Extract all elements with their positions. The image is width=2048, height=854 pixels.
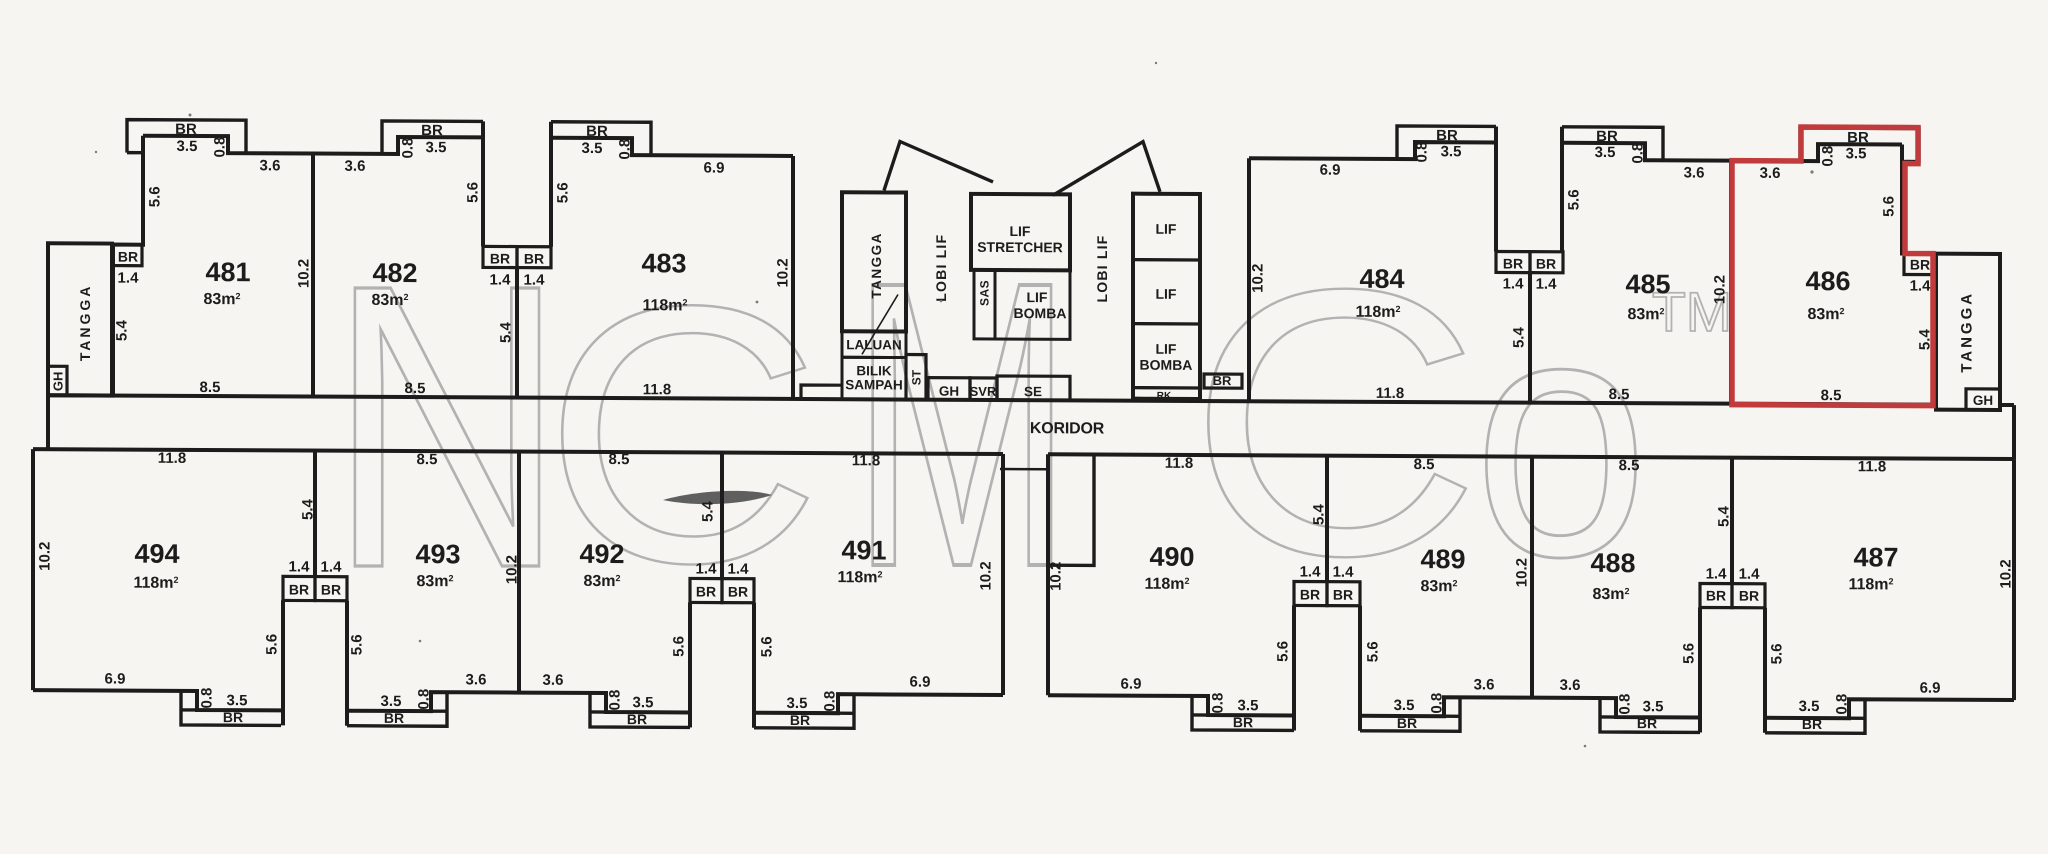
svg-text:BR: BR: [1910, 257, 1930, 273]
svg-text:BR: BR: [1213, 373, 1232, 388]
svg-text:BR: BR: [1233, 714, 1253, 730]
svg-text:BR: BR: [696, 583, 716, 599]
svg-text:11.8: 11.8: [158, 450, 186, 467]
svg-text:LIF: LIF: [1010, 223, 1031, 239]
svg-text:LOBI LIF: LOBI LIF: [1094, 234, 1110, 302]
svg-text:BR: BR: [175, 121, 197, 138]
svg-text:LIF: LIF: [1156, 286, 1177, 302]
svg-text:3.5: 3.5: [582, 140, 603, 157]
svg-text:1.4: 1.4: [1739, 566, 1761, 583]
svg-text:8.5: 8.5: [1414, 456, 1435, 473]
svg-text:BR: BR: [586, 123, 608, 140]
svg-text:1.4: 1.4: [1536, 276, 1558, 293]
svg-text:BR: BR: [1637, 715, 1657, 731]
svg-text:5.6: 5.6: [1680, 643, 1697, 664]
svg-text:BR: BR: [223, 709, 243, 725]
svg-text:BR: BR: [421, 122, 443, 139]
svg-text:3.5: 3.5: [1846, 145, 1867, 162]
svg-text:BR: BR: [1300, 586, 1320, 602]
svg-text:5.6: 5.6: [263, 634, 280, 655]
svg-text:BILIK: BILIK: [856, 363, 891, 378]
svg-text:3.5: 3.5: [1441, 143, 1462, 160]
svg-text:483: 483: [641, 248, 686, 278]
svg-text:487: 487: [1853, 542, 1898, 572]
svg-text:LOBI LIF: LOBI LIF: [933, 234, 949, 302]
svg-text:1.4: 1.4: [1333, 564, 1355, 581]
svg-text:5.4: 5.4: [113, 319, 130, 341]
svg-text:11.8: 11.8: [1858, 458, 1886, 475]
svg-text:3.5: 3.5: [787, 695, 808, 712]
svg-text:5.6: 5.6: [1565, 189, 1582, 210]
svg-text:3.5: 3.5: [633, 694, 654, 711]
svg-text:481: 481: [205, 257, 250, 287]
svg-text:5.6: 5.6: [146, 186, 163, 207]
svg-text:482: 482: [372, 258, 417, 288]
svg-text:485: 485: [1625, 269, 1670, 299]
svg-text:5.6: 5.6: [554, 182, 571, 203]
svg-text:8.5: 8.5: [609, 451, 630, 468]
svg-text:BR: BR: [118, 249, 138, 265]
svg-text:1.4: 1.4: [696, 560, 718, 577]
svg-text:1.4: 1.4: [1910, 278, 1932, 295]
svg-text:1.4: 1.4: [1300, 563, 1322, 580]
svg-text:8.5: 8.5: [200, 379, 221, 396]
svg-text:6.9: 6.9: [704, 160, 725, 177]
svg-text:0.8: 0.8: [1209, 693, 1226, 714]
svg-text:6.9: 6.9: [1121, 676, 1142, 693]
svg-text:LIF: LIF: [1156, 341, 1177, 357]
svg-text:BR: BR: [627, 711, 647, 727]
svg-text:BR: BR: [1847, 129, 1869, 146]
svg-text:492: 492: [579, 539, 624, 569]
svg-text:BR: BR: [728, 584, 748, 600]
svg-text:83m2: 83m2: [1420, 578, 1457, 595]
svg-text:3.5: 3.5: [1595, 144, 1616, 161]
svg-text:5.6: 5.6: [1274, 641, 1291, 662]
svg-text:1.4: 1.4: [490, 271, 512, 288]
svg-text:1.4: 1.4: [289, 558, 311, 575]
svg-text:3.6: 3.6: [466, 671, 487, 688]
svg-text:494: 494: [134, 539, 179, 569]
svg-text:3.6: 3.6: [260, 157, 281, 174]
svg-text:5.6: 5.6: [348, 634, 365, 655]
svg-text:3.6: 3.6: [1560, 677, 1581, 694]
svg-text:BR: BR: [1596, 128, 1618, 145]
svg-text:1.4: 1.4: [1503, 276, 1525, 293]
svg-text:5.4: 5.4: [699, 500, 716, 522]
svg-text:83m2: 83m2: [583, 573, 620, 590]
svg-text:5.6: 5.6: [464, 182, 481, 203]
svg-text:SE: SE: [1024, 384, 1042, 399]
svg-text:493: 493: [415, 539, 460, 569]
svg-text:TANGGA: TANGGA: [1958, 291, 1975, 373]
svg-text:LALUAN: LALUAN: [846, 337, 901, 352]
svg-text:11.8: 11.8: [643, 381, 671, 398]
svg-text:BR: BR: [321, 582, 341, 598]
svg-text:BR: BR: [1503, 256, 1523, 272]
svg-text:5.4: 5.4: [1715, 505, 1732, 527]
svg-text:6.9: 6.9: [910, 674, 931, 691]
svg-text:0.8: 0.8: [1616, 694, 1633, 715]
svg-text:8.5: 8.5: [1619, 457, 1640, 474]
svg-text:SAMPAH: SAMPAH: [845, 377, 903, 392]
svg-text:KORIDOR: KORIDOR: [1030, 420, 1105, 437]
svg-text:5.6: 5.6: [1880, 196, 1897, 217]
svg-text:484: 484: [1359, 264, 1404, 294]
svg-text:5.6: 5.6: [1364, 641, 1381, 662]
svg-text:0.8: 0.8: [606, 690, 623, 711]
svg-text:SAS: SAS: [977, 280, 991, 306]
svg-text:BR: BR: [524, 251, 544, 267]
svg-text:BR: BR: [1436, 127, 1458, 144]
svg-text:10.2: 10.2: [1711, 275, 1728, 304]
svg-text:0.8: 0.8: [399, 138, 416, 159]
svg-text:10.2: 10.2: [1513, 558, 1530, 587]
svg-text:118m2: 118m2: [1355, 304, 1400, 321]
svg-text:5.4: 5.4: [299, 498, 316, 520]
svg-text:8.5: 8.5: [405, 380, 426, 397]
svg-text:3.5: 3.5: [1394, 697, 1415, 714]
svg-text:8.5: 8.5: [1821, 387, 1842, 404]
svg-text:10.2: 10.2: [36, 542, 53, 571]
svg-text:GH: GH: [939, 384, 959, 399]
svg-text:BR: BR: [1333, 587, 1353, 603]
svg-text:490: 490: [1149, 542, 1194, 572]
svg-text:BOMBA: BOMBA: [1014, 305, 1067, 321]
svg-text:1.4: 1.4: [728, 561, 750, 578]
svg-text:3.6: 3.6: [543, 672, 564, 689]
svg-text:10.2: 10.2: [1047, 562, 1064, 591]
svg-text:10.2: 10.2: [295, 259, 312, 288]
svg-text:3.5: 3.5: [177, 138, 198, 155]
svg-text:118m2: 118m2: [1144, 576, 1189, 593]
svg-text:BR: BR: [1739, 588, 1759, 604]
svg-text:TANGGA: TANGGA: [77, 284, 93, 362]
svg-text:0.8: 0.8: [1819, 146, 1836, 167]
svg-text:6.9: 6.9: [105, 671, 126, 688]
svg-text:5.4: 5.4: [1310, 503, 1327, 525]
svg-text:0.8: 0.8: [198, 688, 215, 709]
svg-text:8.5: 8.5: [417, 451, 438, 468]
svg-text:BR: BR: [1536, 256, 1556, 272]
svg-text:11.8: 11.8: [1165, 455, 1193, 472]
svg-text:RK: RK: [1157, 391, 1172, 402]
svg-text:118m2: 118m2: [642, 297, 687, 314]
svg-text:5.6: 5.6: [1768, 643, 1785, 664]
svg-text:11.8: 11.8: [1376, 385, 1404, 402]
svg-text:0.8: 0.8: [616, 139, 633, 160]
svg-text:0.8: 0.8: [1629, 143, 1646, 164]
svg-text:488: 488: [1590, 548, 1635, 578]
svg-text:GH: GH: [51, 372, 66, 392]
svg-text:1.4: 1.4: [1706, 566, 1728, 583]
svg-text:3.6: 3.6: [1474, 676, 1495, 693]
svg-text:1.4: 1.4: [118, 270, 140, 287]
svg-text:489: 489: [1420, 544, 1465, 574]
svg-text:ST: ST: [909, 369, 923, 385]
svg-text:0.8: 0.8: [821, 691, 838, 712]
svg-text:SVR: SVR: [970, 384, 997, 399]
svg-text:3.6: 3.6: [1684, 164, 1705, 181]
svg-text:6.9: 6.9: [1920, 680, 1941, 697]
svg-text:3.5: 3.5: [426, 139, 447, 156]
svg-text:1.4: 1.4: [321, 559, 343, 576]
svg-text:3.5: 3.5: [381, 693, 402, 710]
svg-text:6.9: 6.9: [1320, 162, 1341, 179]
svg-text:BR: BR: [289, 581, 309, 597]
svg-text:1.4: 1.4: [524, 272, 546, 289]
svg-text:10.2: 10.2: [977, 561, 994, 590]
svg-text:0.8: 0.8: [1413, 142, 1430, 163]
svg-text:3.6: 3.6: [345, 158, 366, 175]
svg-text:83m2: 83m2: [1807, 306, 1844, 323]
svg-text:83m2: 83m2: [1592, 586, 1629, 603]
svg-text:3.5: 3.5: [227, 692, 248, 709]
svg-text:83m2: 83m2: [1627, 306, 1664, 323]
svg-text:0.8: 0.8: [211, 137, 228, 158]
svg-text:5.4: 5.4: [497, 321, 514, 343]
svg-text:83m2: 83m2: [371, 292, 408, 309]
svg-text:486: 486: [1805, 266, 1850, 296]
svg-text:5.6: 5.6: [670, 636, 687, 657]
svg-text:8.5: 8.5: [1609, 386, 1630, 403]
svg-text:10.2: 10.2: [774, 258, 791, 287]
svg-text:STRETCHER: STRETCHER: [977, 239, 1063, 255]
svg-text:GH: GH: [1973, 393, 1993, 408]
svg-text:3.6: 3.6: [1760, 165, 1781, 182]
svg-text:83m2: 83m2: [416, 573, 453, 590]
svg-text:118m2: 118m2: [837, 569, 882, 586]
svg-text:3.5: 3.5: [1643, 698, 1664, 715]
svg-text:3.5: 3.5: [1238, 697, 1259, 714]
svg-text:11.8: 11.8: [852, 452, 880, 469]
svg-text:491: 491: [841, 535, 886, 565]
svg-text:118m2: 118m2: [133, 575, 178, 592]
svg-text:10.2: 10.2: [1997, 559, 2014, 588]
svg-text:BOMBA: BOMBA: [1140, 357, 1193, 373]
svg-text:10.2: 10.2: [1249, 264, 1266, 293]
svg-text:LIF: LIF: [1156, 221, 1177, 237]
svg-text:BR: BR: [490, 250, 510, 266]
svg-text:118m2: 118m2: [1848, 576, 1893, 593]
svg-text:LIF: LIF: [1027, 289, 1048, 305]
svg-text:5.6: 5.6: [758, 636, 775, 657]
svg-text:3.5: 3.5: [1799, 698, 1820, 715]
svg-text:TANGGA: TANGGA: [869, 232, 884, 299]
svg-text:83m2: 83m2: [203, 291, 240, 308]
svg-text:BR: BR: [1706, 588, 1726, 604]
svg-text:5.4: 5.4: [1510, 326, 1527, 348]
